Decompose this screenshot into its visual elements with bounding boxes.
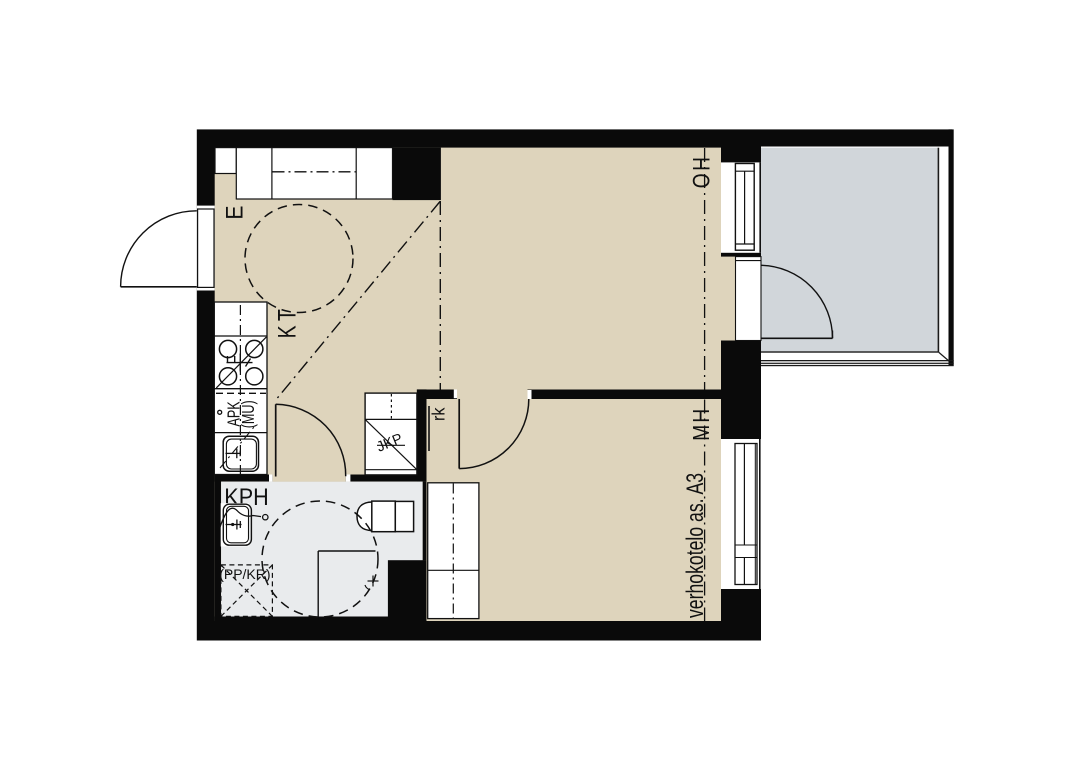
svg-text:E: E xyxy=(221,206,248,220)
svg-text:rk: rk xyxy=(429,407,449,421)
svg-text:OH: OH xyxy=(687,155,715,189)
svg-text:KT: KT xyxy=(273,305,301,338)
svg-text:verhokotelo as. A3: verhokotelo as. A3 xyxy=(681,473,709,618)
svg-text:(MU): (MU) xyxy=(239,400,259,428)
svg-text:MH: MH xyxy=(690,407,715,441)
svg-text:(PP/KR): (PP/KR) xyxy=(219,566,270,582)
